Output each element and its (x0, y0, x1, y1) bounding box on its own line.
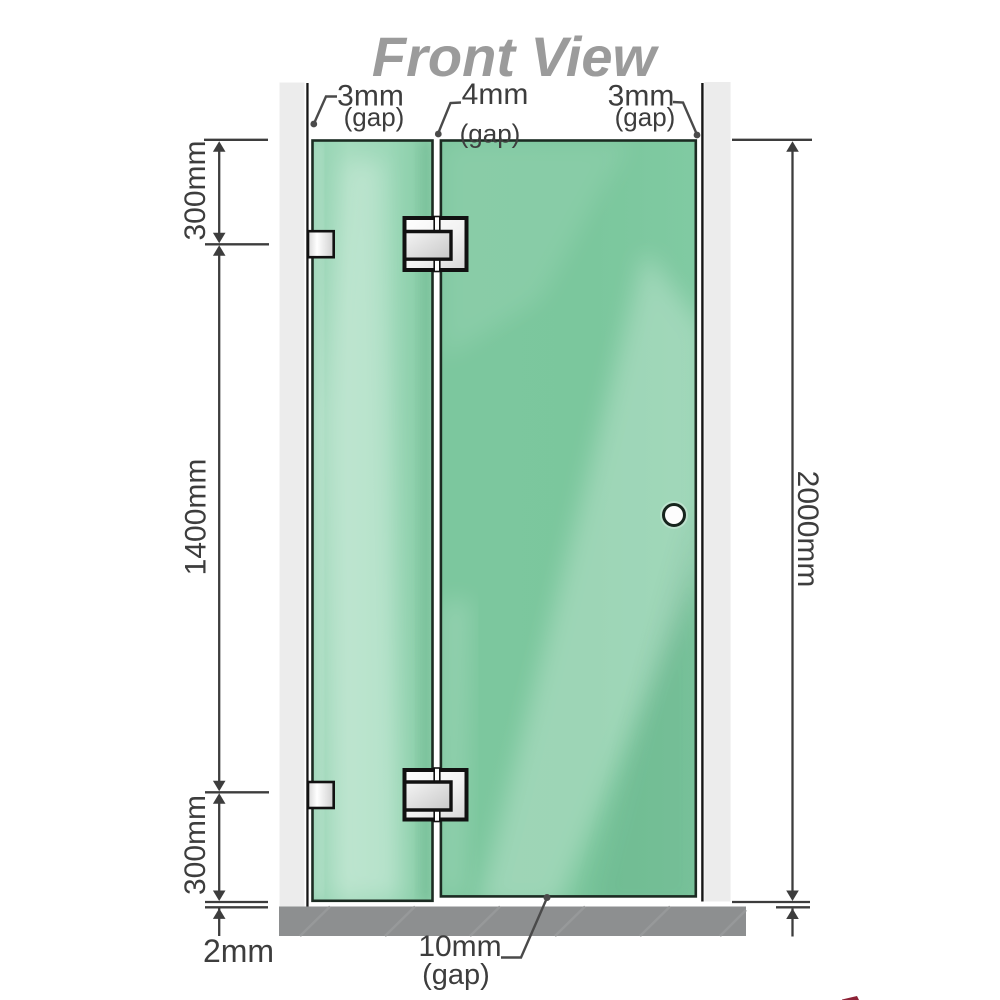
svg-text:1400mm: 1400mm (179, 459, 212, 576)
svg-text:2000mm: 2000mm (791, 471, 824, 588)
svg-text:2mm: 2mm (203, 933, 274, 969)
svg-text:(gap): (gap) (422, 959, 490, 991)
svg-text:300mm: 300mm (179, 795, 212, 895)
svg-text:(gap): (gap) (344, 102, 405, 132)
svg-text:4mm: 4mm (462, 78, 529, 111)
svg-text:(gap): (gap) (615, 102, 676, 132)
svg-text:(gap): (gap) (460, 119, 521, 149)
svg-text:300mm: 300mm (179, 140, 212, 240)
